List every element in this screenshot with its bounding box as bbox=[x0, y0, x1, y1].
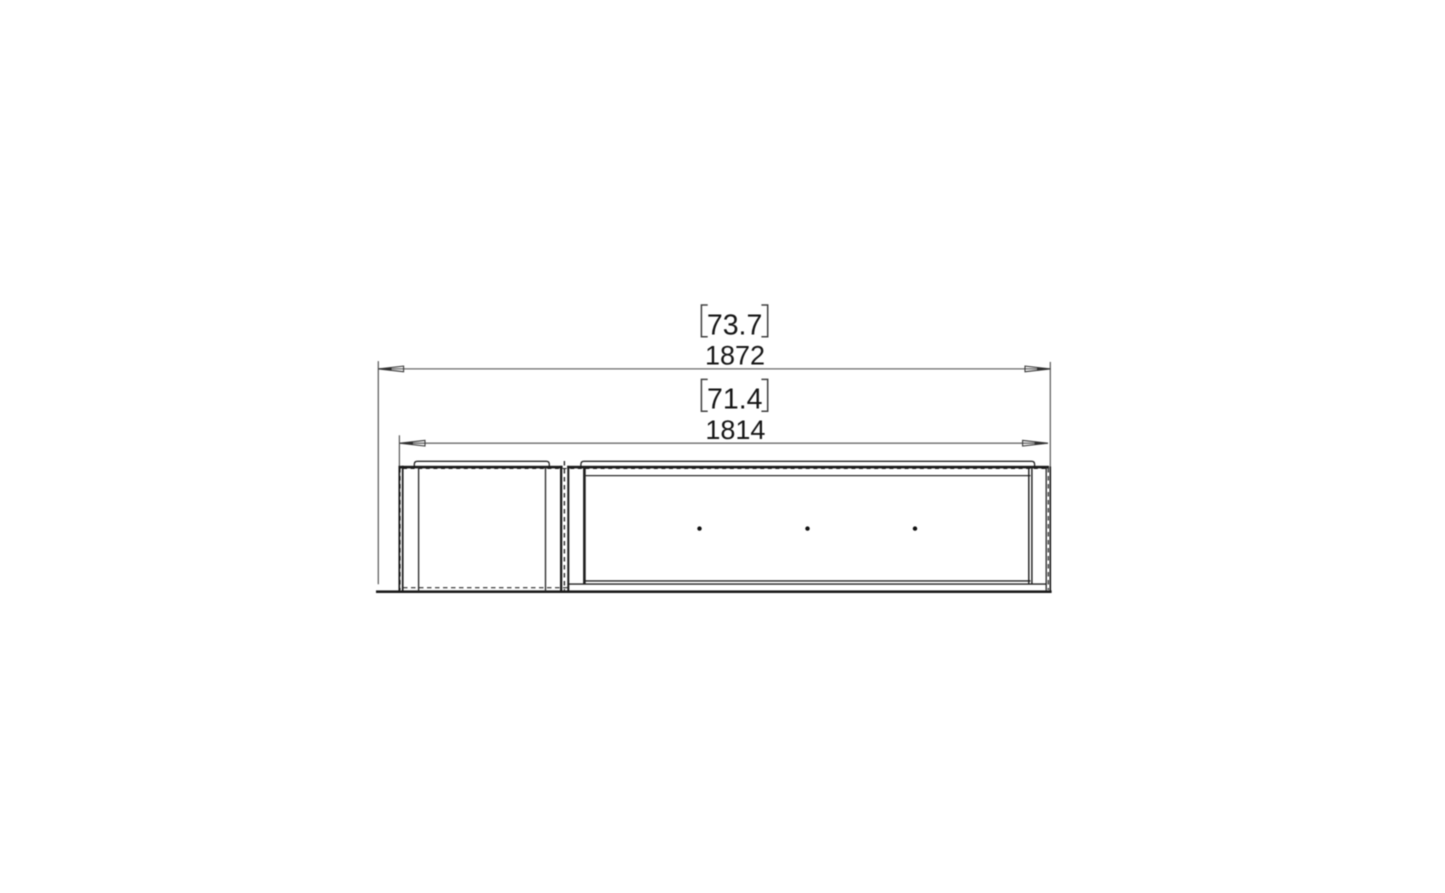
svg-text:1872: 1872 bbox=[705, 340, 765, 370]
svg-text:71.4: 71.4 bbox=[707, 384, 763, 416]
svg-text:73.7: 73.7 bbox=[707, 309, 762, 341]
svg-text:1814: 1814 bbox=[705, 415, 765, 445]
